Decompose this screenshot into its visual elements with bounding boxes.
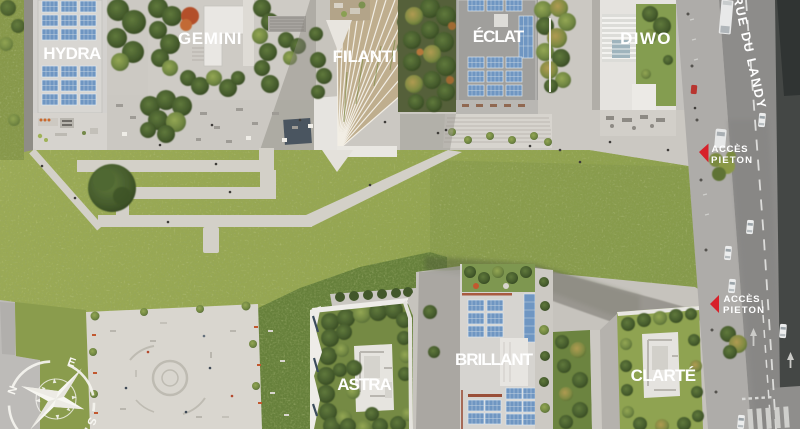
svg-text:ACCÈS: ACCÈS xyxy=(712,143,749,155)
svg-text:ACCÈS: ACCÈS xyxy=(724,293,761,305)
svg-text:BRILLANT: BRILLANT xyxy=(455,350,534,369)
svg-text:GEMINI: GEMINI xyxy=(178,29,242,48)
svg-text:CLARTÉ: CLARTÉ xyxy=(631,366,696,385)
svg-text:ASTRA: ASTRA xyxy=(337,375,391,394)
svg-text:PIETON: PIETON xyxy=(711,155,753,166)
svg-text:HYDRA: HYDRA xyxy=(43,44,101,63)
svg-text:PIETON: PIETON xyxy=(723,305,765,316)
svg-text:FILANTI: FILANTI xyxy=(333,47,397,66)
svg-text:ÉCLAT: ÉCLAT xyxy=(473,27,525,46)
svg-text:DIWO: DIWO xyxy=(620,29,672,48)
